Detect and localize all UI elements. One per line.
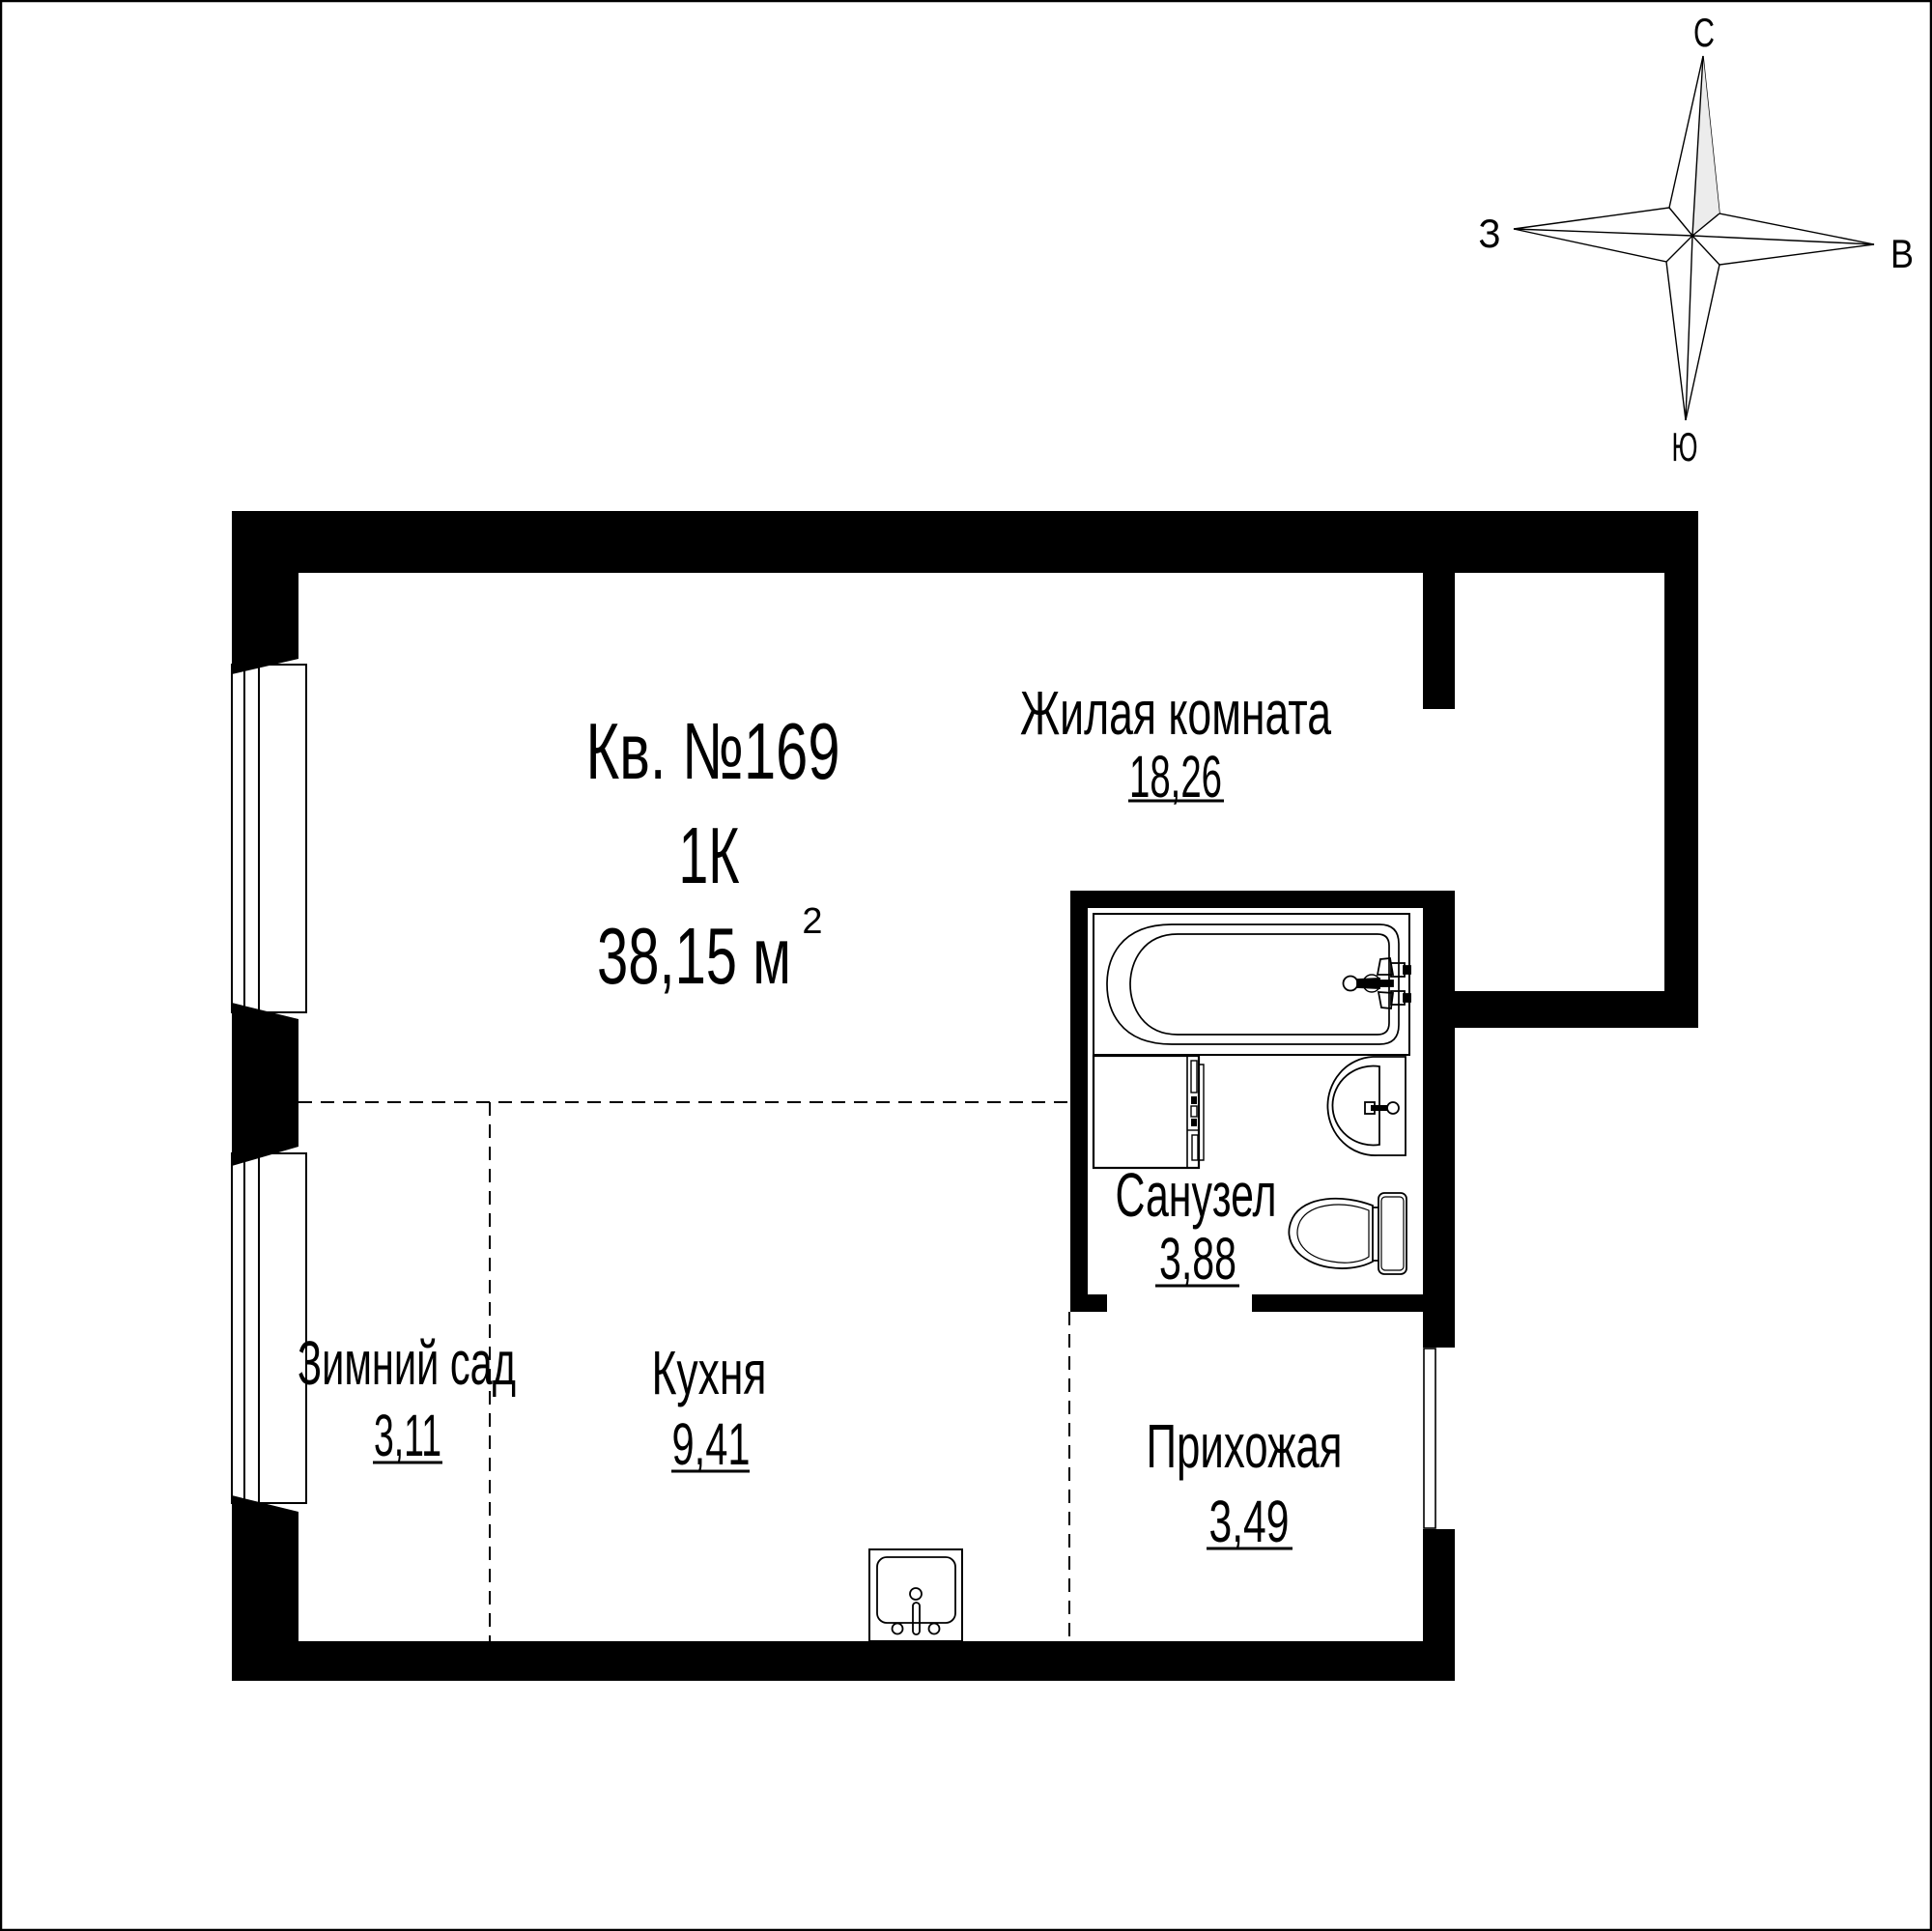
svg-text:Ю: Ю: [1672, 424, 1698, 469]
svg-text:Кухня: Кухня: [652, 1338, 767, 1407]
svg-text:3,11: 3,11: [374, 1403, 441, 1468]
svg-text:Кв. №169: Кв. №169: [586, 706, 840, 796]
svg-text:2: 2: [802, 901, 822, 942]
svg-text:С: С: [1693, 10, 1715, 55]
svg-text:В: В: [1890, 231, 1914, 276]
svg-text:38,15 м: 38,15 м: [597, 911, 791, 1001]
svg-text:1К: 1К: [679, 810, 740, 900]
svg-text:Санузел: Санузел: [1116, 1160, 1277, 1230]
svg-text:Прихожая: Прихожая: [1147, 1411, 1343, 1481]
svg-text:Зимний сад: Зимний сад: [298, 1328, 516, 1398]
svg-text:3,49: 3,49: [1209, 1489, 1290, 1554]
svg-text:3,88: 3,88: [1159, 1226, 1236, 1292]
svg-text:З: З: [1479, 211, 1501, 256]
svg-text:9,41: 9,41: [672, 1411, 751, 1477]
svg-text:Жилая комната: Жилая комната: [1020, 678, 1331, 748]
